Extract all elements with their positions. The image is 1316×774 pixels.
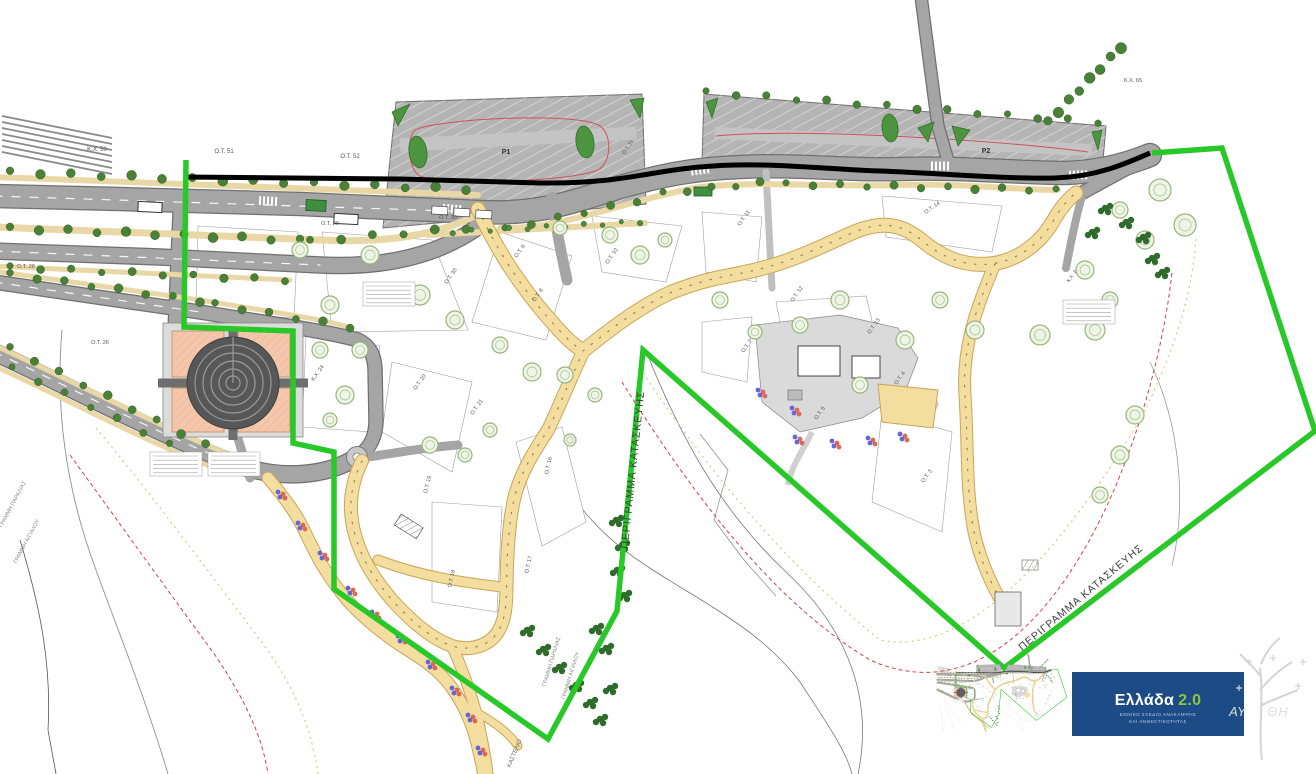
tree-icon: [281, 278, 288, 285]
bush-icon: [527, 631, 533, 637]
bush-icon: [589, 628, 595, 634]
tree-icon: [319, 317, 328, 326]
flower-cluster-icon: [450, 686, 455, 691]
logo-version: 2.0: [1178, 692, 1201, 709]
tree-icon: [153, 416, 160, 423]
ramp-hatch: [2, 122, 112, 144]
tree-icon: [66, 169, 75, 178]
tree-icon: [61, 389, 68, 396]
tree-trunk: [1260, 668, 1262, 760]
tree-icon: [792, 317, 808, 333]
tree-icon: [631, 246, 649, 264]
tree-icon: [103, 391, 112, 400]
terrace-structure: [995, 592, 1021, 626]
tree-icon: [506, 225, 512, 231]
bush-icon: [608, 643, 614, 649]
bush-icon: [1162, 273, 1168, 279]
tree-icon: [1064, 95, 1074, 105]
bush-icon: [610, 689, 616, 695]
tree-icon: [400, 231, 407, 238]
tree-icon: [683, 188, 691, 196]
tree-icon: [883, 101, 890, 108]
logo-subtitle-1: ΕΘΝΙΚΟ ΣΧΕΔΙΟ ΑΝΑΚΑΜΨΗΣ: [1120, 712, 1197, 717]
tree-icon: [88, 283, 95, 290]
bush-icon: [545, 644, 551, 650]
flower-cluster-icon: [452, 691, 457, 696]
bush-icon: [1107, 203, 1113, 209]
flower-cluster-icon: [278, 495, 283, 500]
tree-icon: [6, 223, 14, 231]
annotation-callout: [363, 282, 415, 306]
parking-label: P2: [982, 148, 991, 155]
tree-icon: [544, 223, 549, 228]
tree-icon: [202, 440, 210, 448]
tree-icon: [1076, 261, 1094, 279]
bus-station-roof: [306, 199, 327, 211]
shore-line-dashed: [70, 455, 268, 774]
tree-icon: [1112, 202, 1128, 218]
bush-icon: [590, 703, 596, 709]
tree-icon: [1004, 111, 1010, 117]
tree-icon: [588, 388, 602, 402]
tree-icon: [554, 213, 561, 220]
block-label: Ο.Τ. 28: [17, 264, 35, 270]
tree-icon: [36, 170, 46, 180]
tree-icon: [1111, 446, 1129, 464]
tree-icon: [581, 210, 588, 217]
flower-cluster-icon: [756, 388, 761, 393]
tree-icon: [932, 292, 948, 308]
bush-icon: [1143, 238, 1149, 244]
tree-icon: [336, 386, 354, 404]
tree-icon: [114, 284, 123, 293]
block-label: Κ.Χ. 50: [87, 147, 107, 153]
building: [798, 346, 840, 376]
tree-icon: [6, 167, 14, 175]
flower-cluster-icon: [325, 557, 330, 562]
block-label: Ο.Τ. 26: [91, 340, 109, 346]
tree-icon: [7, 263, 13, 269]
flower-cluster-icon: [473, 719, 478, 724]
flower-cluster-icon: [790, 406, 795, 411]
tree-icon: [151, 231, 160, 240]
bush-icon: [520, 630, 526, 636]
tree-icon: [1149, 179, 1171, 201]
tree-icon: [492, 337, 508, 353]
tree-icon: [483, 423, 497, 437]
tree-icon: [98, 269, 105, 276]
block-label: Ο.Τ. 19: [423, 475, 433, 494]
flower-cluster-icon: [905, 438, 910, 443]
bush-icon: [612, 683, 618, 689]
bush-icon: [536, 649, 542, 655]
tree-icon: [896, 331, 914, 349]
pedestrian-path: [965, 264, 1008, 612]
bush-icon: [1092, 233, 1098, 239]
bush-icon: [1098, 208, 1104, 214]
tree-icon: [93, 229, 101, 237]
tree-icon: [432, 230, 436, 234]
tree-icon: [637, 220, 643, 226]
tree-icon: [1030, 325, 1050, 345]
tree-icon: [917, 184, 925, 192]
bush-icon: [606, 649, 612, 655]
ramp-hatch: [2, 152, 112, 174]
tree-icon: [809, 182, 817, 190]
bush-icon: [1155, 272, 1161, 278]
tree-icon: [60, 277, 68, 285]
tree-icon: [158, 174, 167, 183]
flower-cluster-icon: [483, 752, 488, 757]
tree-icon: [431, 182, 441, 192]
tree-icon: [33, 275, 41, 283]
tree-icon: [370, 180, 379, 189]
tree-icon: [1053, 186, 1059, 192]
tree-icon: [525, 227, 530, 232]
tree-icon: [660, 189, 666, 195]
tree-icon: [323, 413, 337, 427]
flower-cluster-icon: [298, 526, 303, 531]
block-outline: [516, 427, 586, 546]
tree-icon: [823, 96, 831, 104]
tree-icon: [756, 178, 764, 186]
tree-icon: [1174, 214, 1196, 236]
building: [788, 390, 802, 400]
tree-icon: [712, 292, 728, 308]
tree-icon: [602, 227, 618, 243]
bush-icon: [1164, 267, 1170, 273]
flower-cluster-icon: [792, 411, 797, 416]
bush-icon: [610, 570, 616, 576]
tree-icon: [831, 291, 849, 309]
tree-icon: [864, 184, 871, 191]
tree-icon: [190, 271, 197, 278]
tree-icon: [836, 180, 843, 187]
flower-cluster-icon: [830, 439, 835, 444]
tree-icon: [557, 367, 573, 383]
tree-icon: [1053, 107, 1064, 118]
tree-icon: [852, 377, 868, 393]
flower-cluster-icon: [426, 660, 431, 665]
bush-icon: [543, 650, 549, 656]
tree-icon: [658, 233, 672, 247]
tree-icon: [208, 233, 218, 243]
building: [852, 356, 880, 378]
tree-icon: [1095, 65, 1105, 75]
bush-icon: [1094, 227, 1100, 233]
tree-icon: [564, 434, 576, 446]
stairs: [1022, 560, 1038, 570]
tree-icon: [401, 184, 409, 192]
bush-icon: [598, 623, 604, 629]
bush-icon: [596, 629, 602, 635]
tree-icon: [7, 343, 14, 350]
tree-icon: [450, 230, 456, 236]
tree-icon: [267, 236, 275, 244]
bush-icon: [603, 688, 609, 694]
tree-icon: [238, 306, 246, 314]
tree-icon: [732, 92, 740, 100]
flower-cluster-icon: [868, 441, 873, 446]
tree-icon: [763, 92, 770, 99]
bush-icon: [1128, 217, 1134, 223]
flower-cluster-icon: [353, 592, 358, 597]
tree-icon: [212, 299, 219, 306]
block-label: Ο.Τ. 21: [470, 398, 485, 416]
flower-cluster-icon: [468, 718, 473, 723]
flower-cluster-icon: [837, 445, 842, 450]
flower-cluster-icon: [898, 432, 903, 437]
tree-icon: [462, 186, 471, 195]
bush-icon: [529, 625, 535, 631]
tree-icon: [292, 242, 308, 258]
flower-cluster-icon: [797, 412, 802, 417]
tree-icon: [974, 110, 981, 117]
flower-cluster-icon: [433, 666, 438, 671]
tree-icon: [708, 183, 715, 190]
block-label: Ο.Τ. 51: [214, 149, 234, 155]
annotation-callout: [1063, 300, 1115, 324]
bush-icon: [624, 596, 630, 602]
tree-icon: [340, 181, 350, 191]
tree-icon: [1126, 406, 1144, 424]
tree-icon: [177, 430, 186, 439]
bush-icon: [593, 719, 599, 725]
tree-icon: [748, 325, 762, 339]
place-label: ΚΑΣΤΕΛΙΟ: [507, 738, 524, 768]
tree-icon: [853, 101, 861, 109]
tree-icon: [220, 274, 229, 283]
tree-icon: [733, 183, 740, 190]
tree-icon: [1092, 487, 1108, 503]
bush-icon: [1119, 222, 1125, 228]
tree-icon: [1034, 115, 1042, 123]
bush-icon: [1152, 259, 1158, 265]
tree-icon: [67, 265, 74, 272]
block-outline: [872, 412, 952, 532]
tree-icon: [1075, 87, 1084, 96]
tree-icon: [488, 229, 493, 234]
tree-icon: [971, 185, 980, 194]
tree-icon: [361, 246, 379, 264]
block-label: Ο.Τ. 17: [524, 555, 534, 574]
tree-icon: [265, 308, 273, 316]
watermark-letters-right: ΘΗ: [1267, 704, 1289, 719]
flower-cluster-icon: [348, 591, 353, 596]
tree-icon: [251, 274, 259, 282]
bush-icon: [1126, 223, 1132, 229]
tree-icon: [469, 227, 474, 232]
tree-icon: [1106, 52, 1115, 61]
tree-icon: [128, 268, 136, 276]
greece2-logo: Ελλάδα2.0 ΕΘΝΙΚΟ ΣΧΕΔΙΟ ΑΝΑΚΑΜΨΗΣ ΚΑΙ ΑΝ…: [1072, 672, 1244, 736]
tree-icon: [553, 221, 567, 235]
tree-icon: [352, 342, 368, 358]
bush-icon: [1154, 253, 1160, 259]
tree-icon: [312, 342, 328, 358]
tree-icon: [88, 404, 94, 410]
kiosk: [476, 210, 492, 219]
flower-cluster-icon: [320, 556, 325, 561]
flower-cluster-icon: [318, 551, 323, 556]
flower-cluster-icon: [296, 521, 301, 526]
plan-linework: [0, 0, 1315, 774]
block-label: Ο.Τ. 52: [340, 154, 360, 160]
tree-icon: [1064, 115, 1071, 122]
tree-icon: [142, 291, 150, 299]
flower-cluster-icon: [866, 436, 871, 441]
logo-brand: Ελλάδα: [1115, 692, 1174, 709]
bush-icon: [1145, 232, 1151, 238]
contour-line: [20, 540, 56, 774]
tree-icon: [37, 266, 45, 274]
flower-cluster-icon: [763, 394, 768, 399]
tree-icon: [159, 272, 167, 280]
construction-outline-label: ΠΕΡΙΓΡΑΜΜΑ ΚΑΤΑΣΚΕΥΗΣ: [1016, 542, 1145, 653]
bush-icon: [592, 697, 598, 703]
site-plan-drawing: Κ.Χ. 50Ο.Τ. 51Ο.Τ. 52Ο.Τ. 29Ο.Τ. 30Ο.Τ. …: [0, 0, 1316, 774]
tree-icon: [458, 448, 472, 462]
tree-icon: [337, 235, 346, 244]
annotation-callout: [208, 452, 260, 476]
block-label: Κ.Χ. 65: [1124, 78, 1142, 84]
block-outline: [432, 502, 502, 612]
shoreline-label: ΓΡΑΜΜΗ ΠΑΡΑΛΙΑΣ: [542, 636, 563, 688]
flower-cluster-icon: [832, 444, 837, 449]
bush-icon: [1105, 209, 1111, 215]
bush-icon: [561, 662, 567, 668]
stairs: [394, 514, 423, 539]
flower-cluster-icon: [795, 440, 800, 445]
tree-icon: [9, 364, 15, 370]
tree-icon: [128, 406, 136, 414]
flower-cluster-icon: [873, 442, 878, 447]
flower-cluster-icon: [428, 665, 433, 670]
tree-icon: [1095, 120, 1102, 127]
bush-icon: [602, 714, 608, 720]
flower-cluster-icon: [758, 393, 763, 398]
tree-icon: [35, 378, 43, 386]
tree-icon: [64, 225, 73, 234]
site-plan-page: Κ.Χ. 50Ο.Τ. 51Ο.Τ. 52Ο.Τ. 29Ο.Τ. 30Ο.Τ. …: [0, 0, 1316, 774]
flower-cluster-icon: [303, 527, 308, 532]
logo-subtitle-2: ΚΑΙ ΑΝΘΕΚΤΙΚΟΤΗΤΑΣ: [1129, 719, 1187, 724]
flower-cluster-icon: [466, 713, 471, 718]
tree-icon: [783, 180, 789, 186]
tree-icon: [121, 227, 131, 237]
tree-icon: [34, 226, 44, 236]
tree-icon: [7, 269, 14, 276]
tree-icon: [943, 105, 951, 113]
flower-cluster-icon: [276, 490, 281, 495]
tree-icon: [237, 232, 246, 241]
central-plaza: [158, 323, 308, 440]
block-label: Ο.Τ. 30: [439, 215, 457, 221]
annotation-callout: [150, 452, 202, 476]
bush-icon: [583, 702, 589, 708]
flower-cluster-icon: [478, 751, 483, 756]
tree-icon: [890, 181, 898, 189]
tree-icon: [523, 363, 541, 381]
ramp-hatch: [2, 116, 112, 138]
tree-icon: [1115, 43, 1126, 54]
shoreline-label: ΓΡΑΜΜΗ ΑΙΓΙΑΛΟΥ: [13, 518, 41, 564]
tree-icon: [703, 88, 709, 94]
block-label: Ο.Τ. 29: [321, 221, 339, 227]
flower-cluster-icon: [900, 437, 905, 442]
watermark-letters-left: ΑΥ: [1228, 704, 1247, 719]
flower-cluster-icon: [457, 692, 462, 697]
tree-icon: [30, 357, 38, 365]
pedestrian-area: [878, 384, 938, 428]
tree-icon: [913, 105, 922, 114]
flower-cluster-icon: [476, 746, 481, 751]
flower-cluster-icon: [346, 586, 351, 591]
bush-icon: [626, 590, 632, 596]
construction-outline-label: ΠΕΡΙΓΡΑΜΜΑ ΚΑΤΑΣΚΕΥΗΣ: [619, 390, 648, 549]
connector-road: [175, 213, 180, 330]
tree-icon: [1044, 117, 1053, 126]
bush-icon: [1145, 258, 1151, 264]
tree-icon: [166, 440, 173, 447]
tree-icon: [140, 429, 147, 436]
shoreline-label: ΓΡΑΜΜΗ ΠΑΡΑΛΙΑΣ: [0, 480, 28, 529]
tree-icon: [793, 97, 800, 104]
logo-title: Ελλάδα2.0: [1115, 692, 1202, 709]
tree-icon: [607, 201, 615, 209]
bush-icon: [600, 720, 606, 726]
tree-icon: [998, 184, 1006, 192]
tree-icon: [368, 231, 376, 239]
tree-icon: [619, 220, 623, 224]
tree-icon: [945, 183, 952, 190]
tree-icon: [446, 311, 464, 329]
tree-icon: [293, 316, 300, 323]
bush-icon: [1136, 237, 1142, 243]
flower-cluster-icon: [793, 435, 798, 440]
kiosk: [432, 206, 448, 215]
tree-icon: [422, 437, 438, 453]
tree-icon: [279, 179, 287, 187]
flower-cluster-icon: [283, 496, 288, 501]
tree-icon: [196, 298, 205, 307]
tree-icon: [600, 223, 605, 228]
parking-label: P1: [502, 149, 511, 156]
tree-icon: [1025, 187, 1032, 194]
tree-icon: [966, 321, 984, 339]
bush-icon: [1085, 232, 1091, 238]
tree-icon: [581, 221, 586, 226]
tree-icon: [55, 367, 63, 375]
bush-icon: [609, 520, 615, 526]
tree-icon: [113, 414, 121, 422]
tree-icon: [80, 382, 87, 389]
tree-icon: [127, 170, 137, 180]
tree-icon: [321, 296, 339, 314]
tree-icon: [169, 292, 176, 299]
flower-cluster-icon: [800, 441, 805, 446]
tree-icon: [1084, 73, 1095, 84]
bush-icon: [559, 668, 565, 674]
tree-icon: [97, 173, 105, 181]
tree-icon: [633, 198, 641, 206]
tree-icon: [346, 324, 354, 332]
tree-icon: [306, 236, 313, 243]
bus-icon: [138, 201, 162, 212]
